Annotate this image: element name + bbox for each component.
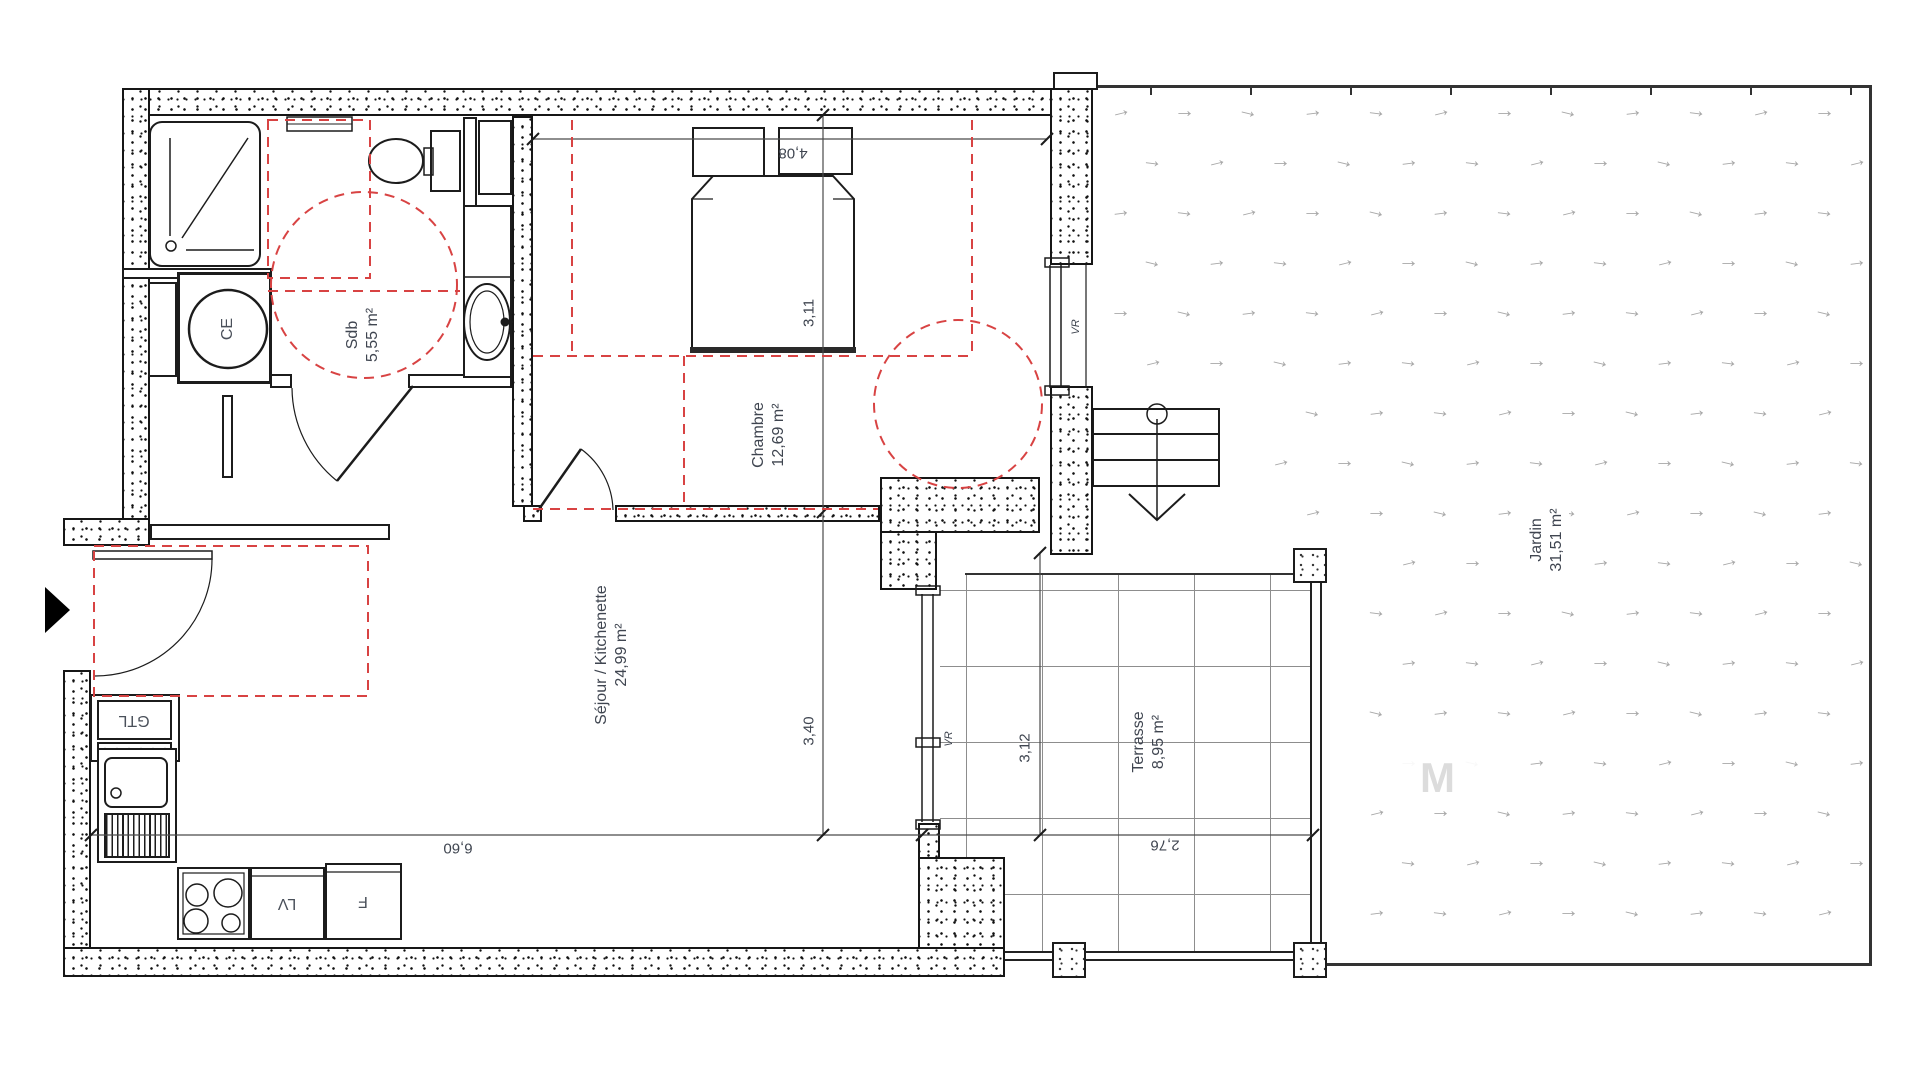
room-name: Séjour / Kitchenette: [592, 585, 612, 725]
bed-outline: [692, 176, 854, 352]
room-label-terrasse: Terrasse 8,95 m²: [1129, 711, 1169, 772]
bed-foot-bar: [690, 347, 856, 353]
room-area: 8,95 m²: [1149, 711, 1169, 772]
bedroom-window-cap-bottom: [1045, 386, 1069, 395]
room-name: Sdb: [343, 308, 363, 362]
room-area: 12,69 m²: [769, 402, 789, 468]
fence-tick: [1650, 86, 1652, 95]
fence-tick: [1550, 86, 1552, 95]
room-label-sdb: Sdb 5,55 m²: [343, 308, 383, 362]
toilet-bowl: [369, 139, 423, 183]
bath-door-arc: [292, 388, 337, 481]
dim-sejour-width: 6,60: [443, 838, 472, 857]
tag-gtl: GTL: [118, 710, 149, 730]
shower-diagonal: [182, 138, 248, 238]
entrance-door-leaf: [93, 551, 212, 559]
tag-water-heater: CE: [218, 318, 238, 340]
bedroom-door-leaf: [537, 449, 581, 512]
dim-terrasse-width: 2,76: [1150, 835, 1179, 854]
room-label-chambre: Chambre 12,69 m²: [749, 402, 789, 468]
zone-bath: [268, 120, 370, 278]
shower-drain: [166, 241, 176, 251]
fence-tick: [1350, 86, 1352, 95]
bath-door-leaf: [337, 386, 413, 481]
tag-dishwasher: LV: [278, 893, 296, 913]
fence-tick: [1850, 86, 1852, 95]
watermark: M: [1365, 752, 1510, 804]
room-area: 5,55 m²: [363, 308, 383, 362]
burner-2: [214, 879, 242, 907]
room-name: Chambre: [749, 402, 769, 468]
room-name: Terrasse: [1129, 711, 1149, 772]
living-window-cap-top: [916, 586, 940, 595]
room-name-area: Jardin 31,51 m²: [1525, 502, 1569, 577]
zone-entrance: [94, 546, 368, 696]
sink-drain: [111, 788, 121, 798]
accessibility-zones: [94, 120, 1042, 696]
entrance-door-arc: [95, 559, 212, 676]
room-area: 24,99 m²: [612, 585, 632, 725]
tag-shutter-bedroom: VR: [1070, 319, 1084, 334]
room-area: 31,51 m²: [1547, 508, 1567, 571]
room-label-jardin: Jardin 31,51 m²: [1525, 502, 1569, 577]
washbasin-tap: [501, 318, 510, 327]
stove-inner: [183, 873, 244, 934]
fence-tick: [1750, 86, 1752, 95]
dim-chambre-depth: 3,11: [801, 299, 820, 327]
entrance-arrow-icon: [45, 587, 70, 633]
plan-linework: [0, 0, 1920, 1080]
floor-plan: →→→→→→→→→→→→→→→→→→→→→→→→→→→→→→→→→→→→→→→→…: [0, 0, 1920, 1080]
tag-shutter-living: VR: [943, 731, 957, 746]
dim-terrasse-depth: 3,12: [1017, 733, 1036, 762]
room-name: Jardin: [1527, 508, 1547, 571]
fence-tick: [1450, 86, 1452, 95]
living-window-cap-mid: [916, 738, 940, 747]
bedroom-window-cap-top: [1045, 258, 1069, 267]
washbasin-inner: [470, 291, 504, 353]
dim-sejour-depth: 3,40: [801, 716, 820, 745]
burner-1: [186, 884, 208, 906]
room-label-sejour: Séjour / Kitchenette 24,99 m²: [592, 585, 632, 725]
burner-3: [184, 909, 208, 933]
living-window-cap-bottom: [916, 820, 940, 829]
turning-circle-bedroom: [874, 320, 1042, 488]
tag-fridge: F: [358, 891, 368, 911]
dim-chambre-width: 4,08: [778, 143, 807, 162]
toilet-tank: [431, 131, 460, 191]
bedroom-door-arc: [581, 449, 613, 510]
fence-tick: [1150, 86, 1152, 95]
fence-tick: [1250, 86, 1252, 95]
burner-4: [222, 914, 240, 932]
